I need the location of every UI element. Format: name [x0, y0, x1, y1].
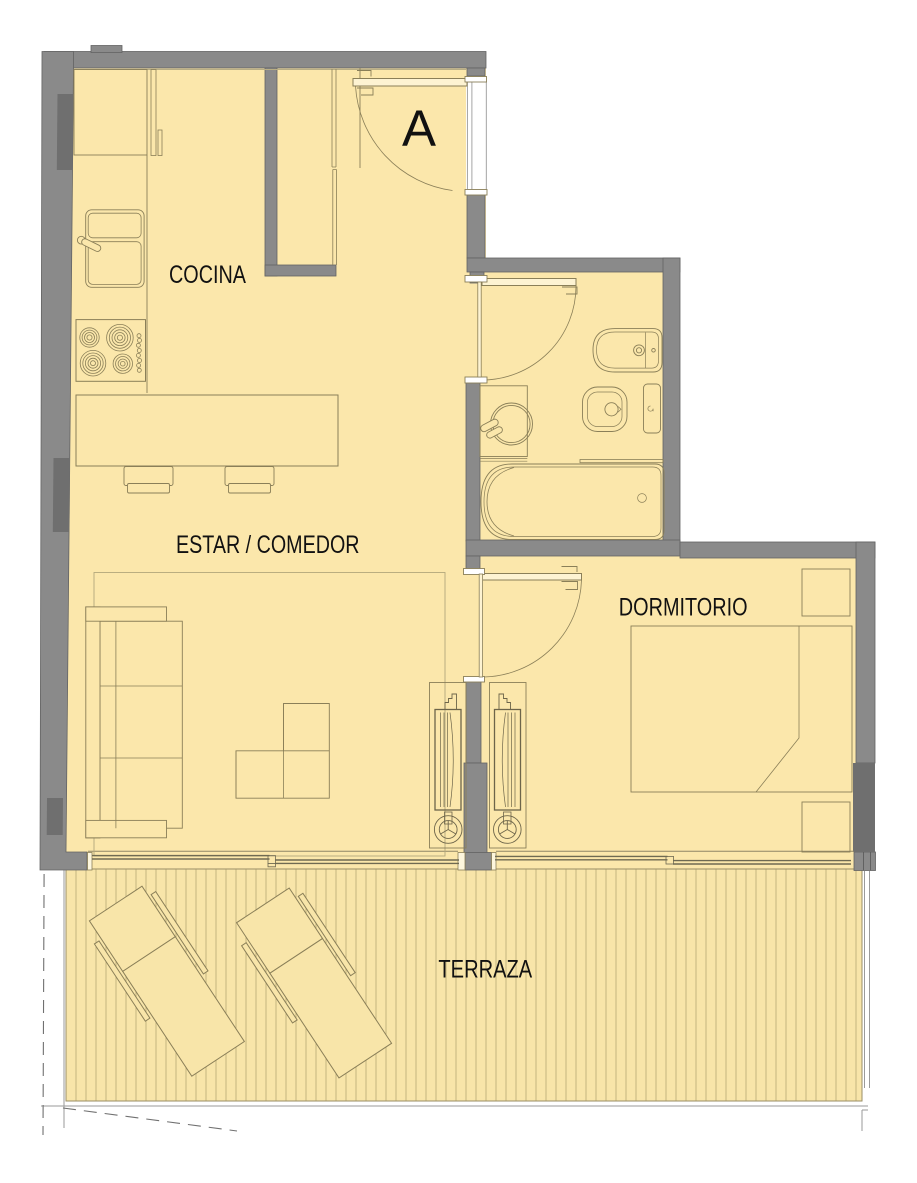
- svg-text:ESTAR / COMEDOR: ESTAR / COMEDOR: [176, 531, 360, 559]
- svg-text:TERRAZA: TERRAZA: [438, 956, 532, 984]
- svg-text:COCINA: COCINA: [169, 261, 246, 289]
- svg-text:DORMITORIO: DORMITORIO: [619, 593, 748, 621]
- svg-text:A: A: [402, 100, 436, 157]
